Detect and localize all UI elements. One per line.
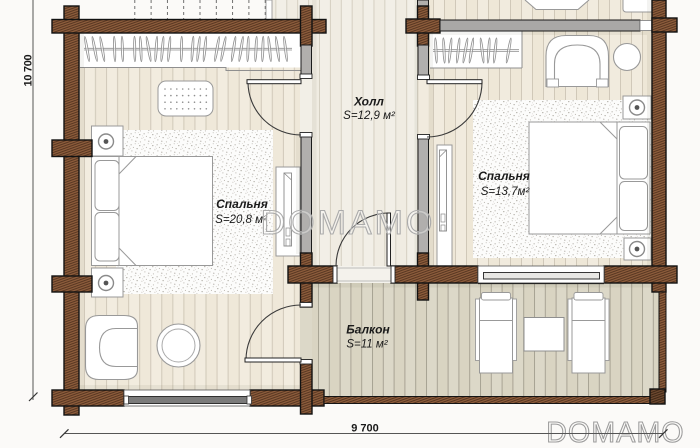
svg-text:Холл: Холл <box>353 95 384 109</box>
svg-text:9 700: 9 700 <box>351 423 379 435</box>
svg-text:S=13,7м²: S=13,7м² <box>481 186 531 198</box>
svg-text:Балкон: Балкон <box>346 323 390 337</box>
svg-text:S=11 м²: S=11 м² <box>346 339 388 351</box>
svg-text:S=12,9 м²: S=12,9 м² <box>343 110 396 122</box>
svg-text:10 700: 10 700 <box>23 54 35 86</box>
svg-text:Спальня: Спальня <box>478 169 530 183</box>
svg-text:DOMAMO: DOMAMO <box>261 204 436 242</box>
